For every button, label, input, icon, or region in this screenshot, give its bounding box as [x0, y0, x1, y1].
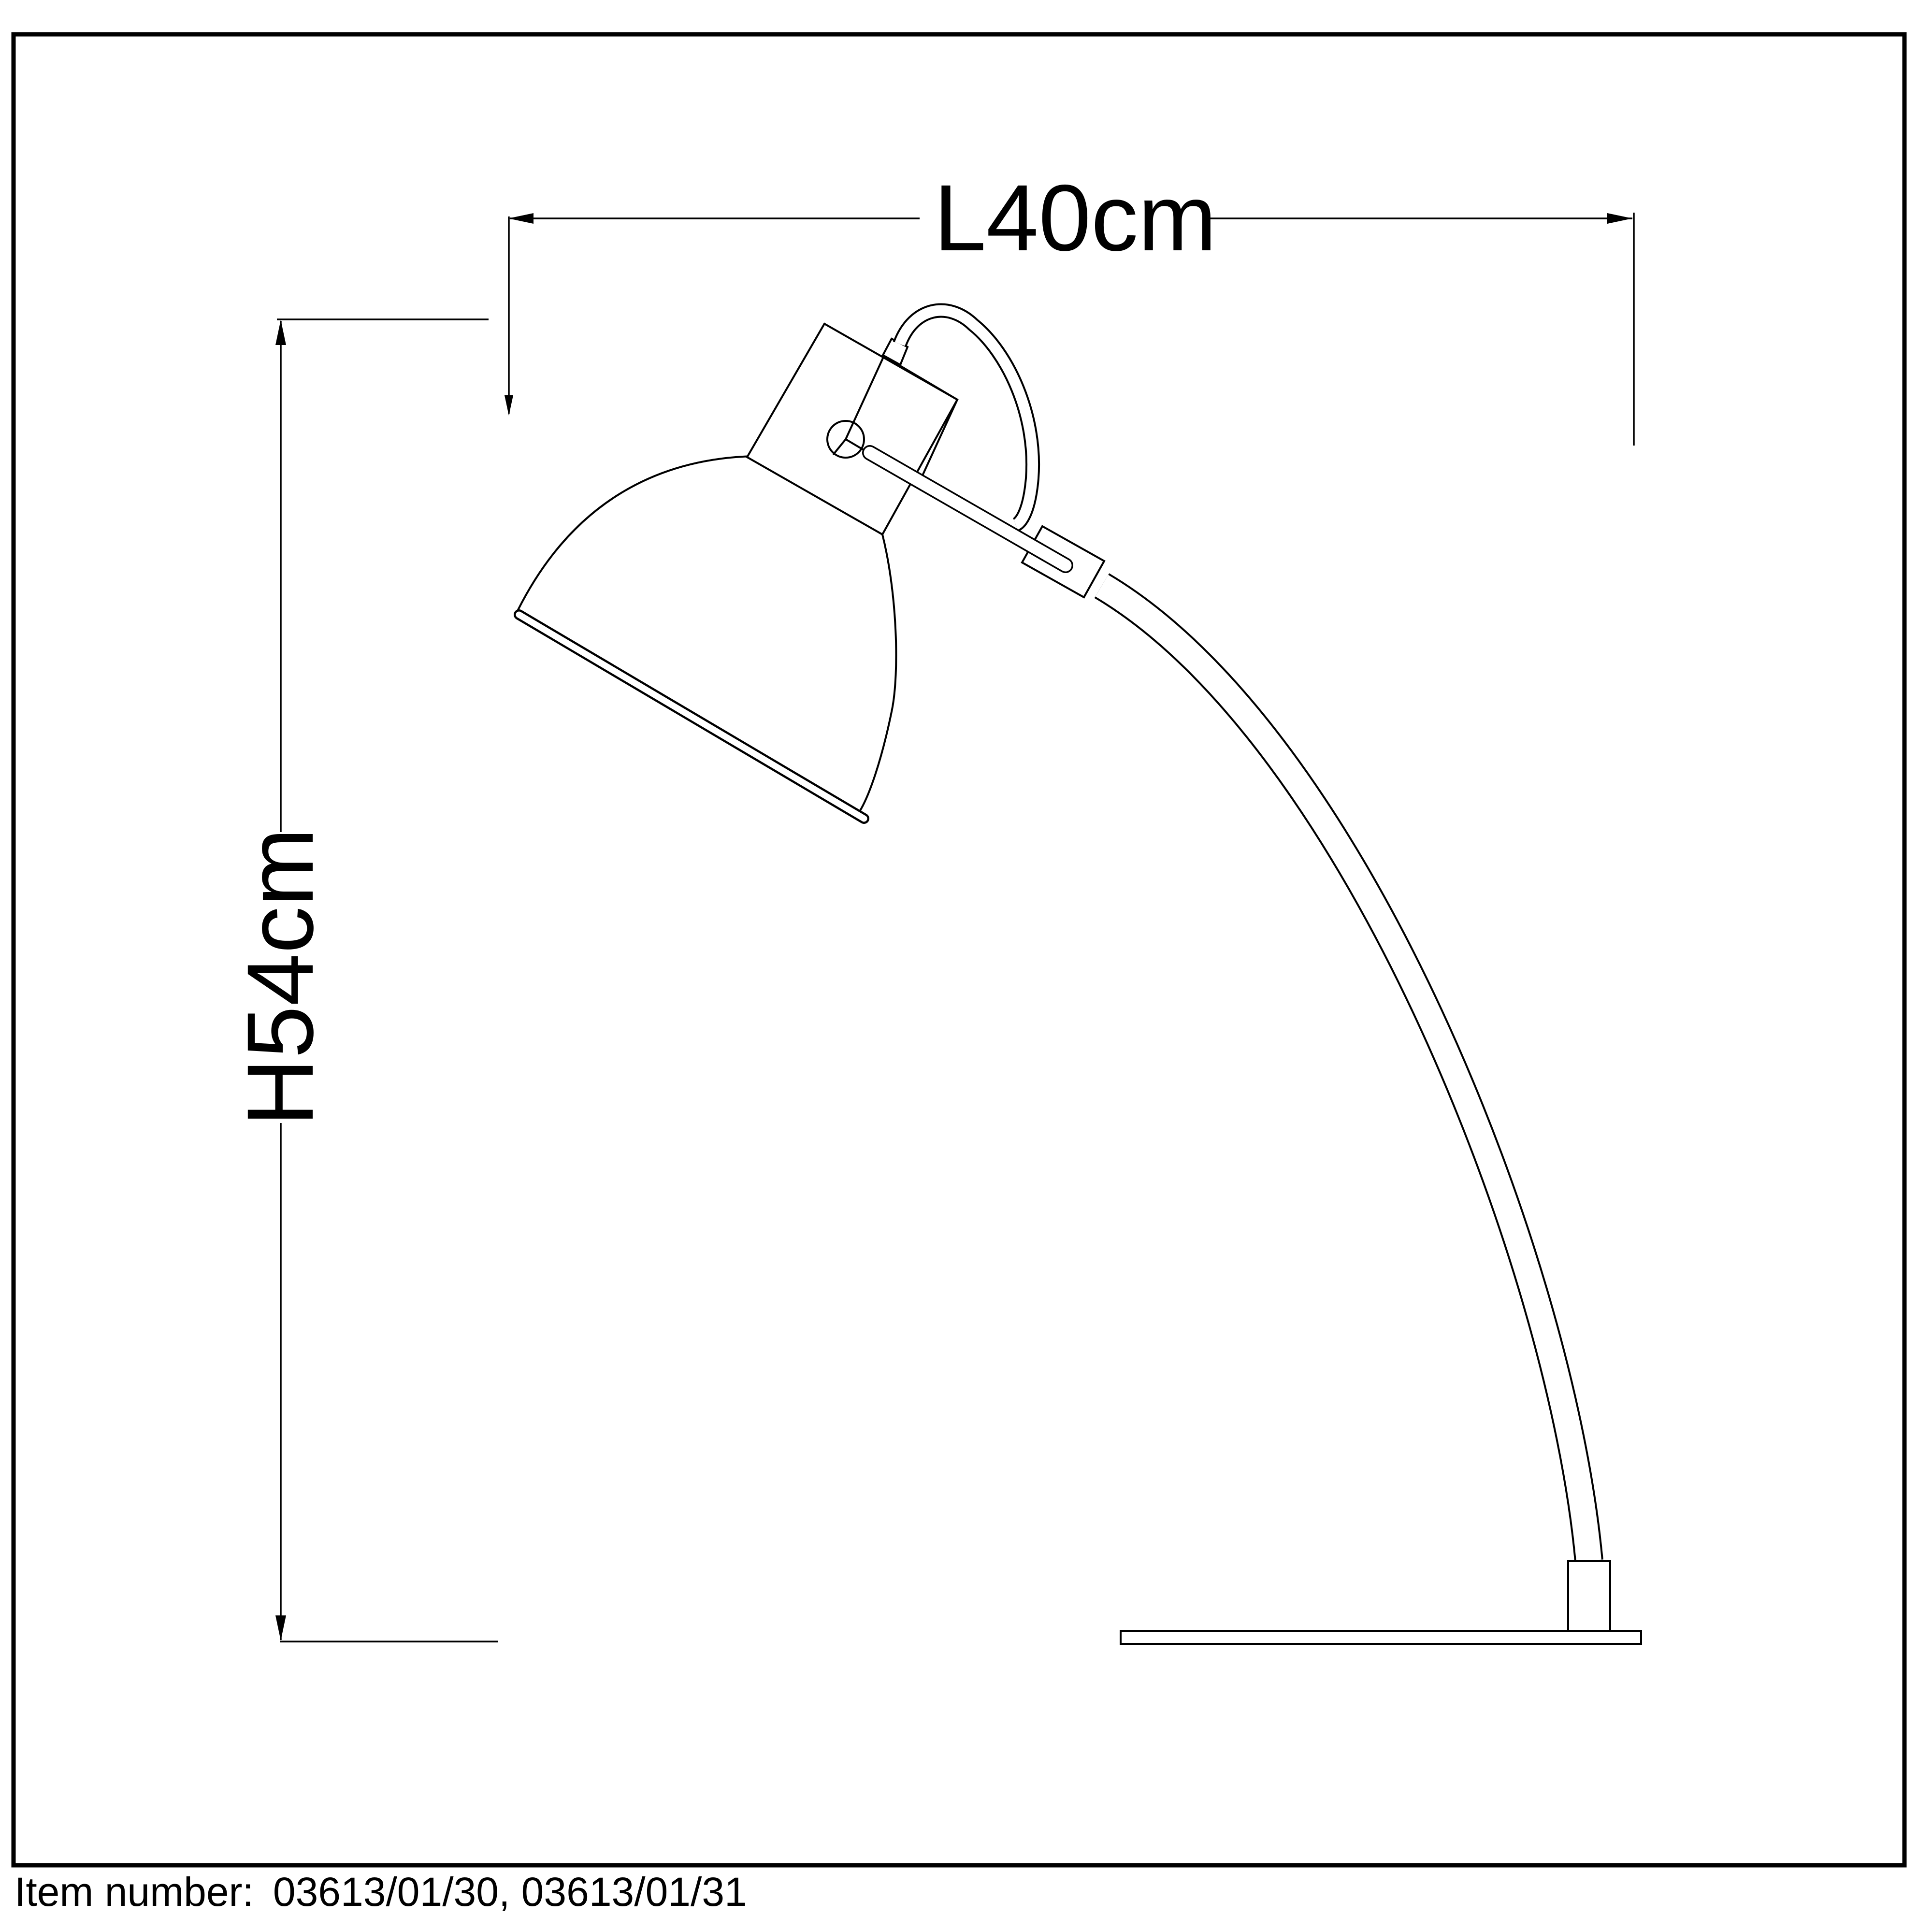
dim-arrow-up-icon — [275, 320, 286, 345]
item-number-line: Item number:03613/01/30, 03613/01/31 — [14, 1869, 747, 1915]
item-number-label: Item number: — [14, 1869, 254, 1915]
lamp-base — [1121, 1631, 1641, 1644]
footer: Item number:03613/01/30, 03613/01/31 — [14, 1869, 747, 1915]
dim-arrow-right-icon — [1607, 213, 1632, 224]
diagram-canvas: L40cm H54cm — [0, 0, 1932, 1930]
dim-arrow-left-icon — [508, 213, 533, 224]
dim-arrow-down-icon — [275, 1615, 286, 1641]
main-arm — [1102, 586, 1589, 1561]
item-number-values: 03613/01/30, 03613/01/31 — [273, 1869, 747, 1915]
extension-arrow-down-icon — [505, 395, 513, 416]
width-dimension: L40cm — [505, 165, 1634, 446]
diagram-page: L40cm H54cm — [0, 0, 1932, 1930]
height-dimension: H54cm — [228, 319, 498, 1642]
lamp-stem — [1568, 1561, 1610, 1631]
main-arm-outline — [1102, 586, 1589, 1561]
width-dimension-label: L40cm — [934, 165, 1216, 271]
height-dimension-label: H54cm — [228, 828, 333, 1126]
lamp-drawing — [518, 311, 1641, 1644]
